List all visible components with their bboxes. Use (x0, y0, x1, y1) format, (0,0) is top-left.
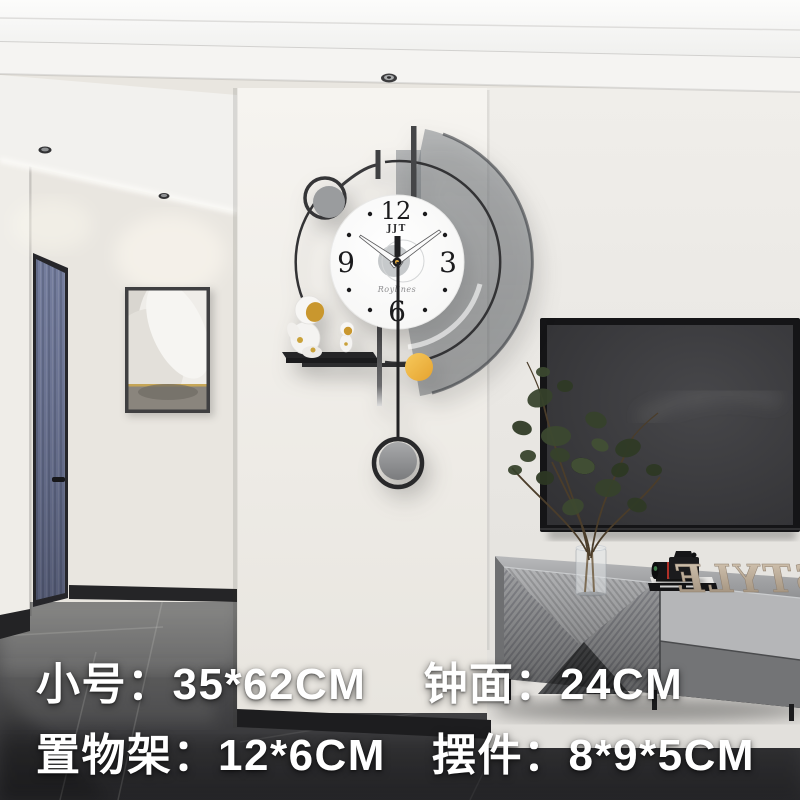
lower-rod (377, 326, 382, 406)
ornament-value: 8*9*5CM (568, 731, 755, 780)
spec-caption-line2: 置物架：12*6CM摆件：8*9*5CM (36, 734, 755, 778)
size-value: 35*62CM (173, 660, 367, 709)
face-value: 24CM (560, 660, 683, 709)
ornament-disc (313, 186, 345, 218)
gold-ball-accent (405, 353, 433, 381)
pendulum-rod (397, 262, 400, 439)
size-label: 小号： (36, 660, 173, 709)
spec-caption-line1: 小号：35*62CM钟面：24CM (36, 663, 683, 707)
tall-rod (411, 126, 417, 204)
product-photo-scene: STYLE (0, 0, 800, 800)
pendulum-bob (379, 442, 417, 480)
ornament-label: 摆件： (432, 731, 569, 780)
shelf-label: 置物架： (36, 731, 218, 780)
numeral-3: 3 (439, 246, 457, 279)
clock-brand: JJT (386, 224, 407, 234)
face-label: 钟面： (423, 660, 560, 709)
astronaut-figurine-large (284, 296, 326, 358)
numeral-9: 9 (337, 246, 355, 279)
astronaut-figurine-small (340, 322, 355, 352)
shelf-value: 12*6CM (218, 731, 386, 780)
short-rod (376, 150, 381, 179)
numeral-12: 12 (381, 197, 412, 225)
shelf (282, 352, 377, 363)
horizontal-rod (302, 363, 419, 367)
